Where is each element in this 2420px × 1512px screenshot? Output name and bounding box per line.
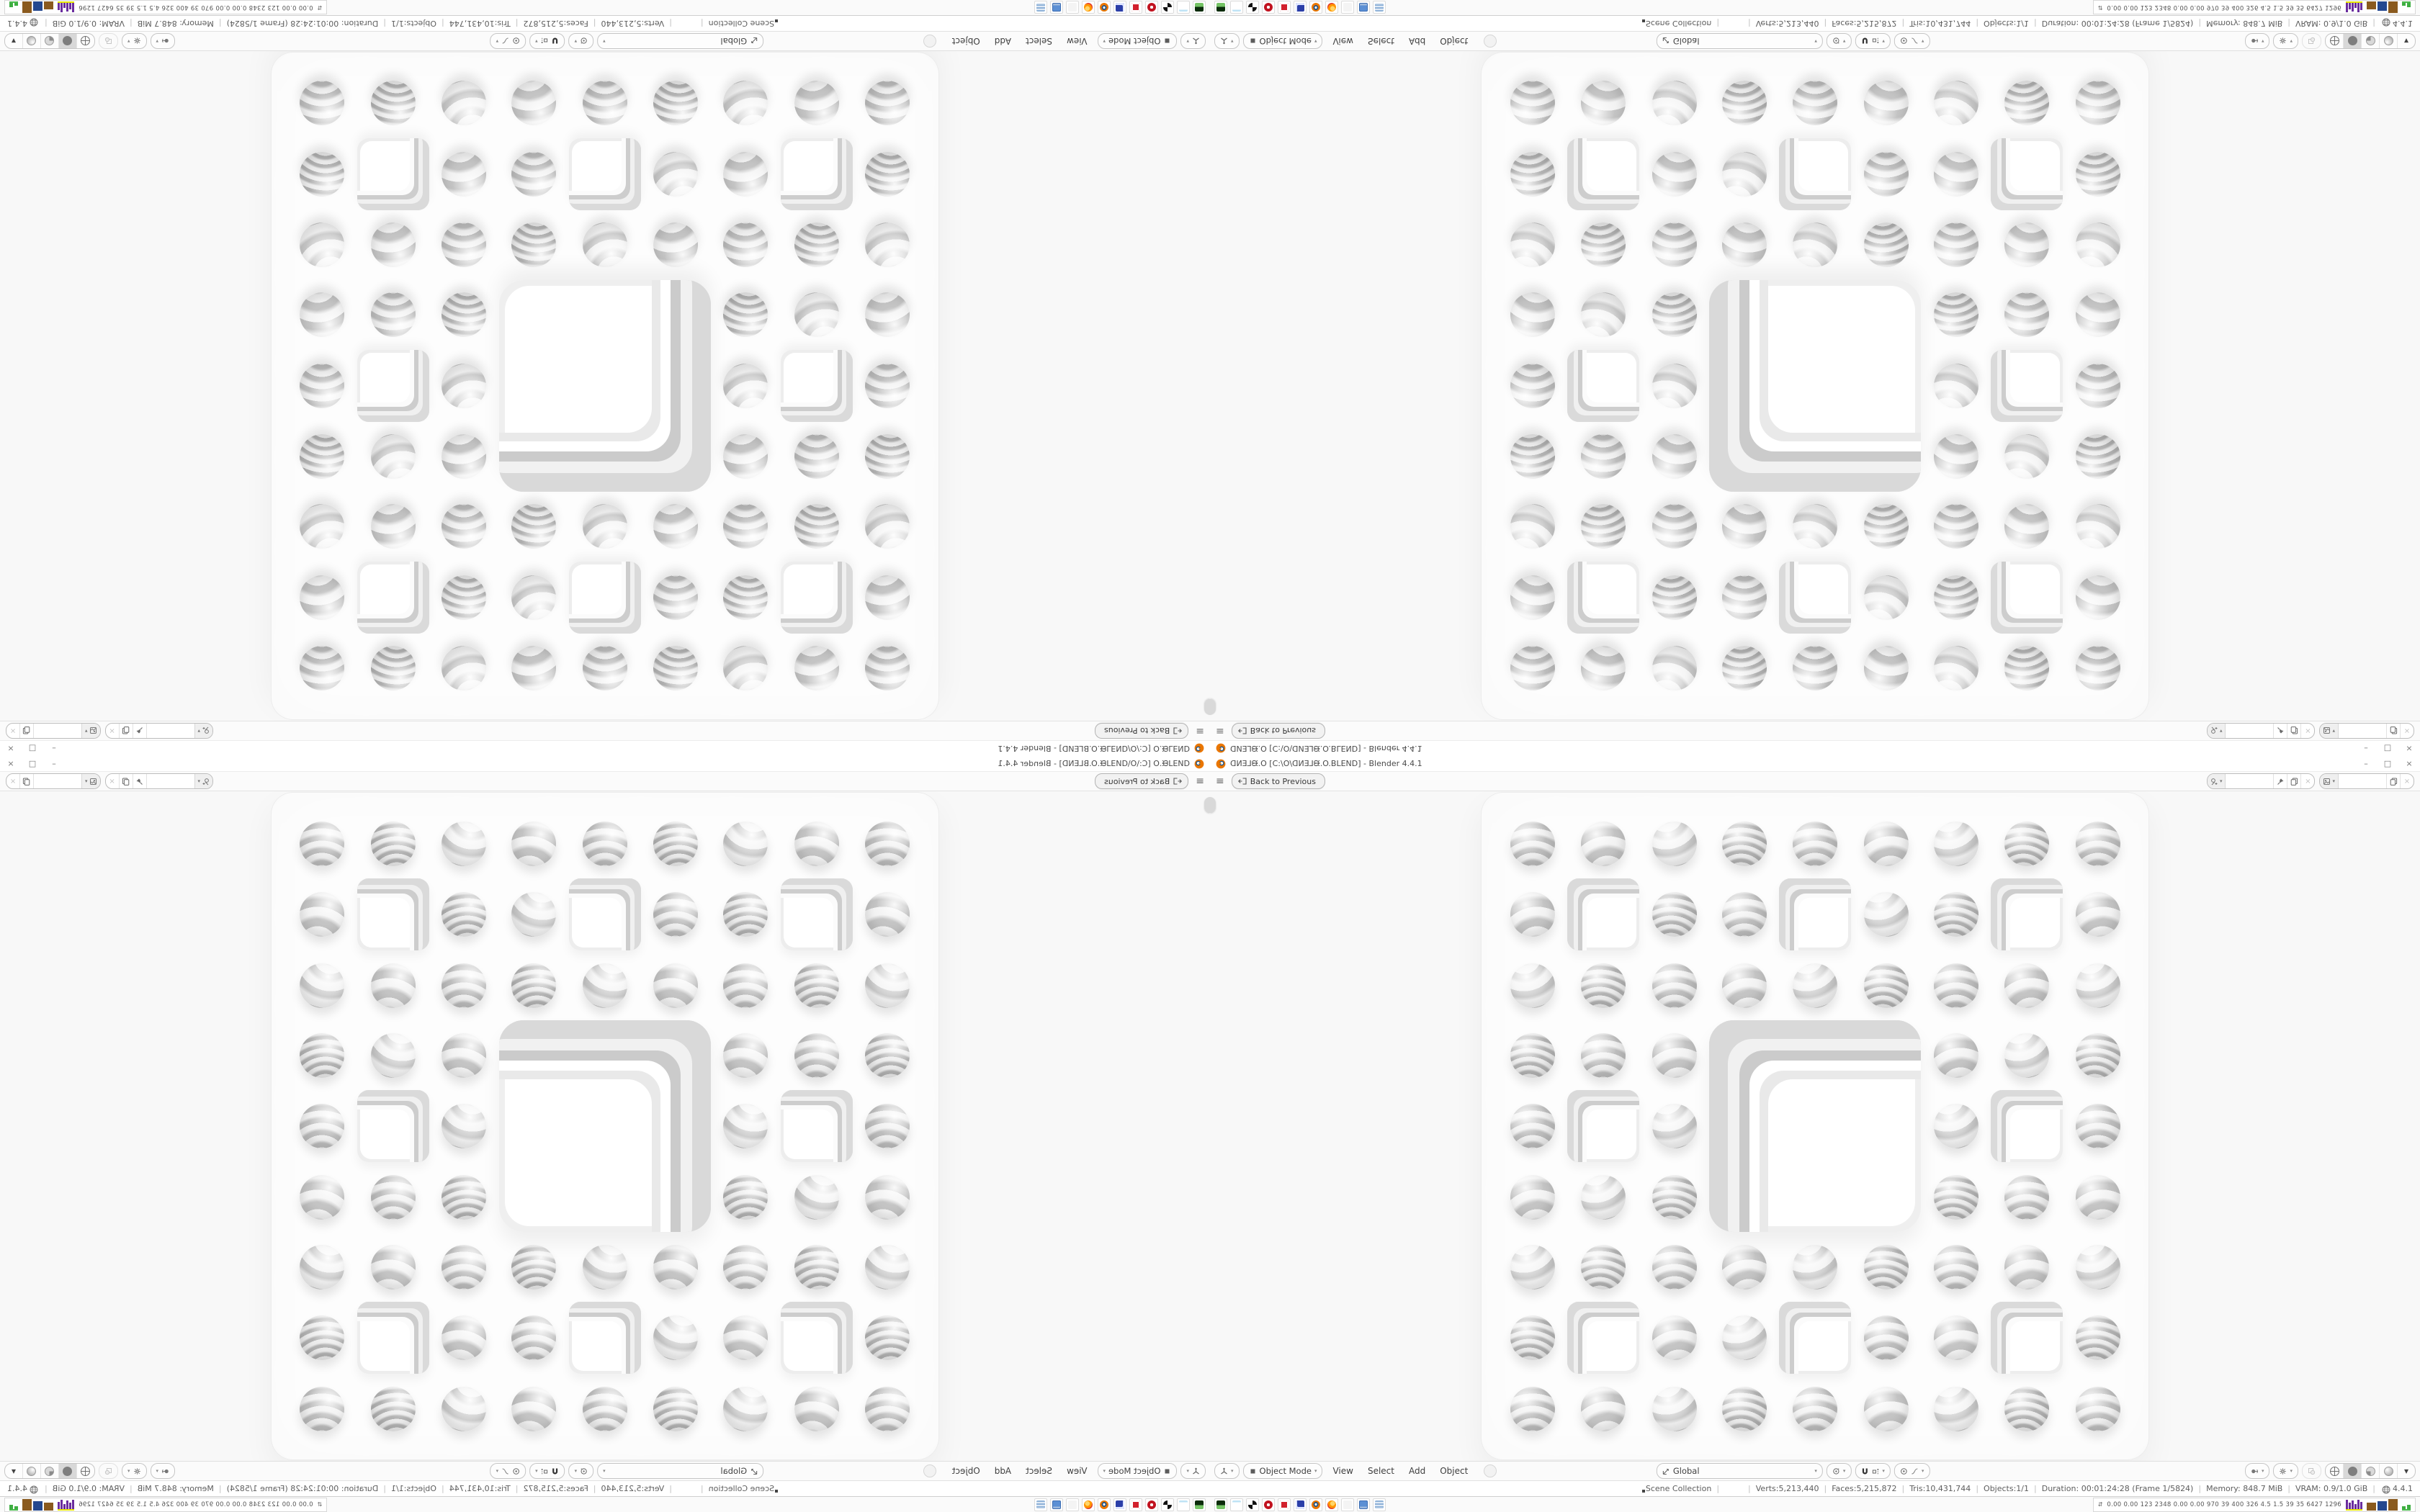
menu-select[interactable]: Select [1026, 1466, 1052, 1476]
view-layer-selector[interactable]: ▾ × [6, 723, 101, 739]
pin-icon [135, 727, 143, 735]
transform-orientation-dropdown[interactable]: Global ▾ [597, 33, 763, 49]
new-view-layer-button[interactable] [2386, 774, 2400, 788]
sponge-sphere [1934, 575, 1978, 620]
view-layer-browse-button[interactable]: ▾ [2320, 724, 2339, 738]
restore-button[interactable]: □ [2383, 759, 2393, 769]
remove-view-layer-button[interactable]: × [2400, 724, 2414, 738]
new-view-layer-button[interactable] [20, 724, 34, 738]
back-to-previous-button[interactable]: Back to Previous [1232, 723, 1325, 739]
menu-object[interactable]: Object [952, 1466, 980, 1476]
taskbar-app-blender[interactable] [1309, 1, 1322, 14]
taskbar-app-photo-editor[interactable] [1246, 1498, 1259, 1511]
sponge-sphere [2076, 505, 2120, 549]
menu-select[interactable]: Select [1368, 1466, 1394, 1476]
sponge-sphere [724, 1033, 768, 1078]
sponge-sphere [1722, 81, 1767, 126]
taskbar-app-blender[interactable] [1098, 1498, 1111, 1511]
sponge-sphere [1864, 822, 1909, 866]
taskbar-app-emulator-64[interactable] [1113, 1, 1126, 14]
status-stats: Scene Collection || Verts:5,213,440| Fac… [7, 19, 774, 28]
sponge-sphere [794, 1033, 839, 1078]
sponge-sphere [1793, 963, 1837, 1008]
mode-dropdown[interactable]: Object Mode ▾ [1098, 33, 1178, 49]
viewport-editor-icon [1220, 37, 1228, 45]
view-layer-selector[interactable]: ▾ × [2319, 773, 2414, 789]
new-scene-button[interactable] [120, 724, 133, 738]
shading-material-button[interactable] [2362, 1464, 2380, 1478]
toolbar-toggle-tab[interactable] [1204, 797, 1210, 813]
shading-wireframe-button[interactable] [2326, 1464, 2344, 1478]
stat-duration: Duration: 00:01:24:28 (Frame 1/5824) [227, 19, 379, 28]
snapping-toggle[interactable]: ▾ [1855, 33, 1891, 49]
minimize-button[interactable]: – [2361, 744, 2371, 754]
menu-select[interactable]: Select [1368, 36, 1394, 46]
toolbar-toggle-tab[interactable] [1210, 699, 1216, 715]
hamburger-menu-icon[interactable]: ≡ [1216, 776, 1224, 786]
updown-arrows-icon: ⇵ [2098, 4, 2103, 11]
editor-type-dropdown[interactable]: ▾ [1214, 33, 1240, 49]
taskbar-app-media-player[interactable] [1193, 1498, 1206, 1511]
sponge-sphere [1510, 963, 1555, 1008]
taskbar-app-notepad[interactable] [1177, 1498, 1190, 1511]
taskbar-app-red-app-1[interactable] [1145, 1, 1158, 14]
minimize-button[interactable]: – [2361, 759, 2371, 769]
menu-object[interactable]: Object [1440, 36, 1468, 46]
hamburger-menu-icon[interactable]: ≡ [1216, 726, 1224, 736]
menu-view[interactable]: View [1067, 1466, 1087, 1476]
sponge-sphere [512, 1245, 557, 1290]
sponge-sphere [1652, 81, 1697, 126]
taskbar-app-calculator[interactable] [1373, 1, 1386, 14]
snapping-toggle[interactable]: ▾ [1855, 1463, 1891, 1479]
back-arrow-icon [1173, 726, 1182, 735]
xray-toggle[interactable] [2302, 1463, 2321, 1479]
taskbar-app-ghost-app[interactable] [1341, 1498, 1354, 1511]
scene-browse-button[interactable]: ▾ [2208, 774, 2226, 788]
scene-selector[interactable]: ▾ × [105, 773, 214, 789]
scene-selector[interactable]: ▾ × [2207, 723, 2316, 739]
scene-name-field[interactable] [147, 774, 194, 788]
menu-add[interactable]: Add [995, 36, 1011, 46]
view-layer-browse-button[interactable]: ▾ [2320, 774, 2339, 788]
system-monitor-values: 0.00 0.00 123 2348 0.00 0.00 970 39 400 … [2107, 4, 2341, 12]
taskbar-app-ghost-app[interactable] [1066, 1498, 1079, 1511]
editor-type-dropdown[interactable]: ▾ [1180, 33, 1206, 49]
orientation-label: Global [720, 36, 747, 46]
sponge-sphere [866, 647, 910, 691]
hamburger-menu-icon[interactable]: ≡ [1196, 726, 1204, 736]
sponge-hole [357, 138, 429, 210]
bar-chart-widget [2367, 2, 2398, 14]
taskbar-app-emulator-64[interactable] [1113, 1498, 1126, 1511]
viewport-editor-icon [1192, 1467, 1200, 1475]
sponge-sphere [442, 223, 487, 268]
updown-arrows-icon: ⇵ [318, 1501, 323, 1508]
shading-solid-button[interactable] [2344, 1464, 2362, 1478]
window-controls: – □ × [2361, 744, 2414, 754]
taskbar-app-ghost-app[interactable] [1341, 1, 1354, 14]
transform-orientation-dropdown[interactable]: Global ▾ [1657, 1463, 1823, 1479]
taskbar-app-blender[interactable] [1098, 1, 1111, 14]
sponge-sphere [1934, 435, 1978, 480]
menu-add[interactable]: Add [1409, 36, 1425, 46]
sponge-sphere [724, 575, 768, 620]
menu-object[interactable]: Object [952, 36, 980, 46]
taskbar-app-red-app-1[interactable] [1145, 1498, 1158, 1511]
status-indicator-dot [1642, 19, 1645, 22]
proportional-edit-icon [512, 1467, 520, 1475]
sponge-sphere [1934, 822, 1978, 866]
minimize-button[interactable]: – [49, 759, 59, 769]
view-layer-name-field[interactable] [2339, 774, 2386, 788]
gizmo-icon [161, 1467, 169, 1475]
shading-mode-group: ▾ [2325, 33, 2416, 49]
sponge-hole [1991, 878, 2063, 950]
toolbar-toggle-tab[interactable] [1210, 797, 1216, 813]
sponge-sphere [724, 1104, 768, 1148]
taskbar-app-firefox[interactable] [1325, 1498, 1338, 1511]
view-layer-icon [2323, 778, 2331, 786]
pin-icon [2277, 727, 2285, 735]
menu-object[interactable]: Object [1440, 1466, 1468, 1476]
chevron-down-icon: ▾ [2220, 778, 2223, 784]
taskbar-app-emulator-64[interactable] [1294, 1498, 1307, 1511]
sponge-sphere [371, 647, 416, 691]
toolbar-toggle-tab[interactable] [1204, 699, 1210, 715]
editor-type-dropdown[interactable]: ▾ [1180, 1463, 1206, 1479]
sponge-sphere [794, 1245, 839, 1290]
wireframe-icon [2330, 37, 2339, 46]
sponge-sphere [1652, 647, 1697, 691]
menu-select[interactable]: Select [1026, 36, 1052, 46]
pivot-point-dropdown[interactable]: ▾ [569, 1463, 594, 1479]
viewport-header-right: ▾ ▾ ▾ [2245, 33, 2416, 49]
transform-orientation-dropdown[interactable]: Global ▾ [1657, 33, 1823, 49]
scene-browse-button[interactable]: ▾ [194, 774, 213, 788]
chevron-down-icon: ▾ [1922, 1468, 1924, 1474]
sponge-sphere [724, 223, 768, 268]
sponge-sphere [512, 223, 557, 268]
shading-rendered-button[interactable] [22, 34, 40, 48]
taskbar-app-notepad[interactable] [1177, 1, 1190, 14]
shading-rendered-button[interactable] [22, 1464, 40, 1478]
wireframe-icon [2330, 1467, 2339, 1476]
shading-rendered-button[interactable] [2380, 34, 2398, 48]
view-layer-browse-button[interactable]: ▾ [81, 724, 100, 738]
stat-faces: Faces:5,215,872 [1832, 19, 1896, 28]
menu-view[interactable]: View [1332, 1466, 1353, 1476]
shading-options-dropdown[interactable]: ▾ [2398, 34, 2415, 48]
pin-button[interactable] [2273, 774, 2287, 788]
pin-button[interactable] [133, 724, 147, 738]
sponge-sphere [1581, 435, 1626, 480]
scene-name-field[interactable] [2226, 724, 2273, 738]
sponge-sphere [512, 1315, 557, 1360]
close-button[interactable]: × [6, 744, 16, 754]
gizmos-dropdown[interactable]: ▾ [2245, 33, 2270, 49]
view-layer-icon [89, 727, 97, 735]
orientation-global-icon [750, 37, 758, 45]
sponge-sphere [654, 1245, 699, 1290]
gizmos-dropdown[interactable]: ▾ [151, 1463, 176, 1479]
shading-material-button[interactable] [40, 1464, 58, 1478]
green-graph-widget [2402, 1500, 2411, 1511]
menu-view[interactable]: View [1067, 36, 1087, 46]
menu-add[interactable]: Add [995, 1466, 1011, 1476]
mode-dropdown[interactable]: Object Mode ▾ [1243, 33, 1323, 49]
taskbar-app-photo-editor[interactable] [1246, 1, 1259, 14]
shading-wireframe-button[interactable] [2326, 34, 2344, 48]
remove-view-layer-button[interactable]: × [6, 774, 20, 788]
menu-add[interactable]: Add [1409, 1466, 1425, 1476]
sponge-sphere [2004, 81, 2049, 126]
sponge-sphere [866, 963, 910, 1008]
scene-name-field[interactable] [147, 724, 194, 738]
taskbar-app-display-settings[interactable] [1050, 1498, 1063, 1511]
tool-settings-icon[interactable] [923, 1464, 936, 1477]
sponge-hole [1779, 562, 1851, 634]
proportional-editing-toggle[interactable]: ▾ [1894, 33, 1930, 49]
stat-memory: Memory: 848.7 MiB [138, 19, 214, 28]
shading-options-dropdown[interactable]: ▾ [5, 1464, 22, 1478]
snapping-toggle[interactable]: ▾ [529, 33, 565, 49]
pivot-point-dropdown[interactable]: ▾ [1827, 1463, 1852, 1479]
sponge-sphere [1722, 647, 1767, 691]
view-layer-name-field[interactable] [2339, 724, 2386, 738]
stat-tris: Tris:10,431,744 [449, 1484, 511, 1493]
taskbar-app-calculator[interactable] [1034, 1498, 1047, 1511]
shading-wireframe-button[interactable] [76, 1464, 94, 1478]
orientation-label: Global [1673, 1466, 1700, 1476]
sponge-sphere [1652, 435, 1697, 480]
pivot-point-dropdown[interactable]: ▾ [569, 33, 594, 49]
sponge-sphere [1864, 505, 1909, 549]
snapping-toggle[interactable]: ▾ [529, 1463, 565, 1479]
window-titlebar: ᗡИƎ⅃ᙠ.O [C:\O\ᗡИƎ⅃ᙠ.O.BLEND] - Blender 4… [0, 756, 1210, 772]
taskbar-app-red-app-2[interactable] [1129, 1498, 1142, 1511]
gizmos-dropdown[interactable]: ▾ [151, 33, 176, 49]
scene-selector[interactable]: ▾ × [2207, 773, 2316, 789]
chevron-down-icon: ▾ [2404, 36, 2408, 46]
transform-orientation-dropdown[interactable]: Global ▾ [597, 1463, 763, 1479]
3d-viewport[interactable] [1210, 51, 2420, 721]
sponge-sphere [794, 822, 839, 866]
system-monitor-values: 0.00 0.00 123 2348 0.00 0.00 970 39 400 … [79, 4, 313, 12]
minimize-button[interactable]: – [49, 744, 59, 754]
sponge-sphere [300, 364, 345, 408]
proportional-editing-toggle[interactable]: ▾ [490, 33, 526, 49]
sponge-sphere [724, 435, 768, 480]
overlays-dropdown[interactable]: ▾ [122, 1463, 147, 1479]
histogram-purple [2346, 2, 2362, 14]
chevron-down-icon: ▾ [2404, 1466, 2408, 1476]
taskbar-app-calculator[interactable] [1034, 1, 1047, 14]
sponge-sphere [1722, 892, 1767, 937]
hamburger-menu-icon[interactable]: ≡ [1196, 776, 1204, 786]
new-scene-button[interactable] [120, 774, 133, 788]
view-layer-selector[interactable]: ▾ × [2319, 723, 2414, 739]
menu-view[interactable]: View [1332, 36, 1353, 46]
back-to-previous-button[interactable]: Back to Previous [1095, 723, 1188, 739]
chevron-down-icon: ▾ [1922, 38, 1924, 44]
shading-wireframe-button[interactable] [76, 34, 94, 48]
shading-material-button[interactable] [40, 34, 58, 48]
xray-toggle[interactable] [99, 33, 118, 49]
mode-dropdown[interactable]: Object Mode ▾ [1098, 1463, 1178, 1479]
sponge-sphere [654, 822, 699, 866]
sponge-sphere [1793, 1387, 1837, 1431]
sponge-sphere [583, 647, 627, 691]
new-scene-button[interactable] [2287, 724, 2300, 738]
remove-view-layer-button[interactable]: × [6, 724, 20, 738]
mode-dropdown[interactable]: Object Mode ▾ [1243, 1463, 1323, 1479]
sponge-sphere [866, 81, 910, 126]
taskbar-app-red-app-1[interactable] [1262, 1, 1275, 14]
sponge-sphere [442, 963, 487, 1008]
new-view-layer-button[interactable] [20, 774, 34, 788]
sponge-sphere [1510, 364, 1555, 408]
back-to-previous-button[interactable]: Back to Previous [1095, 773, 1188, 789]
view-layer-selector[interactable]: ▾ × [6, 773, 101, 789]
pin-button[interactable] [2273, 724, 2287, 738]
remove-view-layer-button[interactable]: × [2400, 774, 2414, 788]
sponge-sphere [1510, 293, 1555, 338]
sponge-sphere [1652, 575, 1697, 620]
sponge-sphere [2076, 1387, 2120, 1431]
sponge-sphere [1722, 822, 1767, 866]
taskbar-app-firefox[interactable] [1325, 1, 1338, 14]
tool-settings-icon[interactable] [923, 35, 936, 48]
window-title: ᗡИƎ⅃ᙠ.O [C:\O\ᗡИƎ⅃ᙠ.O.BLEND] - Blender 4… [1230, 744, 1422, 754]
taskbar-app-emulator-64[interactable] [1294, 1, 1307, 14]
scene-selector[interactable]: ▾ × [105, 723, 214, 739]
viewport-header-right: ▾ ▾ ▾ [2245, 1463, 2416, 1479]
view-layer-browse-button[interactable]: ▾ [81, 774, 100, 788]
tool-settings-icon[interactable] [1484, 1464, 1497, 1477]
close-button[interactable]: × [6, 759, 16, 769]
xray-toggle[interactable] [99, 1463, 118, 1479]
restore-button[interactable]: □ [27, 744, 37, 754]
close-button[interactable]: × [2404, 759, 2414, 769]
restore-button[interactable]: □ [2383, 744, 2393, 754]
shading-mode-group: ▾ [4, 33, 95, 49]
taskbar-app-media-player[interactable] [1214, 1498, 1227, 1511]
editor-type-dropdown[interactable]: ▾ [1214, 1463, 1240, 1479]
taskbar-app-display-settings[interactable] [1357, 1498, 1370, 1511]
back-to-previous-button[interactable]: Back to Previous [1232, 773, 1325, 789]
tool-settings-icon[interactable] [1484, 35, 1497, 48]
taskbar-app-media-player[interactable] [1193, 1, 1206, 14]
taskbar-app-red-app-2[interactable] [1278, 1498, 1291, 1511]
unlink-scene-button[interactable]: × [106, 774, 120, 788]
overlays-dropdown[interactable]: ▾ [2273, 1463, 2298, 1479]
taskbar-app-ghost-app[interactable] [1066, 1, 1079, 14]
shading-solid-button[interactable] [2344, 34, 2362, 48]
unlink-scene-button[interactable]: × [2300, 774, 2314, 788]
new-scene-button[interactable] [2287, 774, 2300, 788]
sponge-hole [781, 1302, 853, 1374]
object-mode-icon [1163, 37, 1171, 45]
orientation-label: Global [1673, 36, 1700, 46]
green-graph-widget [2402, 2, 2411, 12]
sponge-sphere [724, 892, 768, 937]
chevron-down-icon: ▾ [156, 38, 159, 44]
taskbar-app-display-settings[interactable] [1357, 1, 1370, 14]
sponge-sphere [1934, 81, 1978, 126]
3d-viewport[interactable] [0, 51, 1210, 721]
sponge-sphere [654, 152, 699, 197]
taskbar-app-red-app-2[interactable] [1129, 1, 1142, 14]
pin-button[interactable] [133, 774, 147, 788]
scene-browse-button[interactable]: ▾ [194, 724, 213, 738]
shading-options-dropdown[interactable]: ▾ [2398, 1464, 2415, 1478]
proportional-editing-toggle[interactable]: ▾ [1894, 1463, 1930, 1479]
shading-solid-button[interactable] [58, 1464, 76, 1478]
taskbar-app-red-app-2[interactable] [1278, 1, 1291, 14]
sponge-sphere [1652, 1104, 1697, 1148]
scene-name-field[interactable] [2226, 774, 2273, 788]
sponge-sphere [371, 1245, 416, 1290]
sponge-sphere [371, 293, 416, 338]
3d-viewport[interactable] [0, 791, 1210, 1461]
scene-browse-button[interactable]: ▾ [2208, 724, 2226, 738]
gizmos-dropdown[interactable]: ▾ [2245, 1463, 2270, 1479]
taskbar-app-firefox[interactable] [1082, 1498, 1095, 1511]
close-button[interactable]: × [2404, 744, 2414, 754]
sponge-sphere [1652, 892, 1697, 937]
sponge-sphere [583, 822, 627, 866]
taskbar-app-notepad[interactable] [1230, 1, 1243, 14]
taskbar-app-display-settings[interactable] [1050, 1, 1063, 14]
shading-material-button[interactable] [2362, 34, 2380, 48]
sponge-sphere [1864, 892, 1909, 937]
sponge-sphere [300, 81, 345, 126]
taskbar-app-photo-editor[interactable] [1161, 1, 1174, 14]
scene-icon [2210, 778, 2218, 786]
shading-solid-button[interactable] [58, 34, 76, 48]
overlays-dropdown[interactable]: ▾ [122, 33, 147, 49]
3d-viewport[interactable] [1210, 791, 2420, 1461]
xray-toggle[interactable] [2302, 33, 2321, 49]
taskbar-app-blender[interactable] [1309, 1498, 1322, 1511]
taskbar-app-firefox[interactable] [1082, 1, 1095, 14]
new-view-layer-button[interactable] [2386, 724, 2400, 738]
xray-icon [2308, 37, 2316, 45]
proportional-edit-icon [1900, 1467, 1908, 1475]
overlays-dropdown[interactable]: ▾ [2273, 33, 2298, 49]
taskbar-app-photo-editor[interactable] [1161, 1498, 1174, 1511]
restore-button[interactable]: □ [27, 759, 37, 769]
view-layer-name-field[interactable] [34, 724, 81, 738]
sponge-sphere [794, 963, 839, 1008]
taskbar-app-media-player[interactable] [1214, 1, 1227, 14]
view-layer-name-field[interactable] [34, 774, 81, 788]
system-taskbar: ⇵ 0.00 0.00 123 2348 0.00 0.00 970 39 40… [0, 0, 1210, 16]
shading-options-dropdown[interactable]: ▾ [5, 34, 22, 48]
unlink-scene-button[interactable]: × [106, 724, 120, 738]
pivot-point-dropdown[interactable]: ▾ [1827, 33, 1852, 49]
unlink-scene-button[interactable]: × [2300, 724, 2314, 738]
taskbar-app-calculator[interactable] [1373, 1498, 1386, 1511]
sponge-sphere [724, 364, 768, 408]
taskbar-app-red-app-1[interactable] [1262, 1498, 1275, 1511]
taskbar-app-notepad[interactable] [1230, 1498, 1243, 1511]
proportional-editing-toggle[interactable]: ▾ [490, 1463, 526, 1479]
sponge-sphere [442, 364, 487, 408]
sponge-sphere [1793, 505, 1837, 549]
shading-rendered-button[interactable] [2380, 1464, 2398, 1478]
